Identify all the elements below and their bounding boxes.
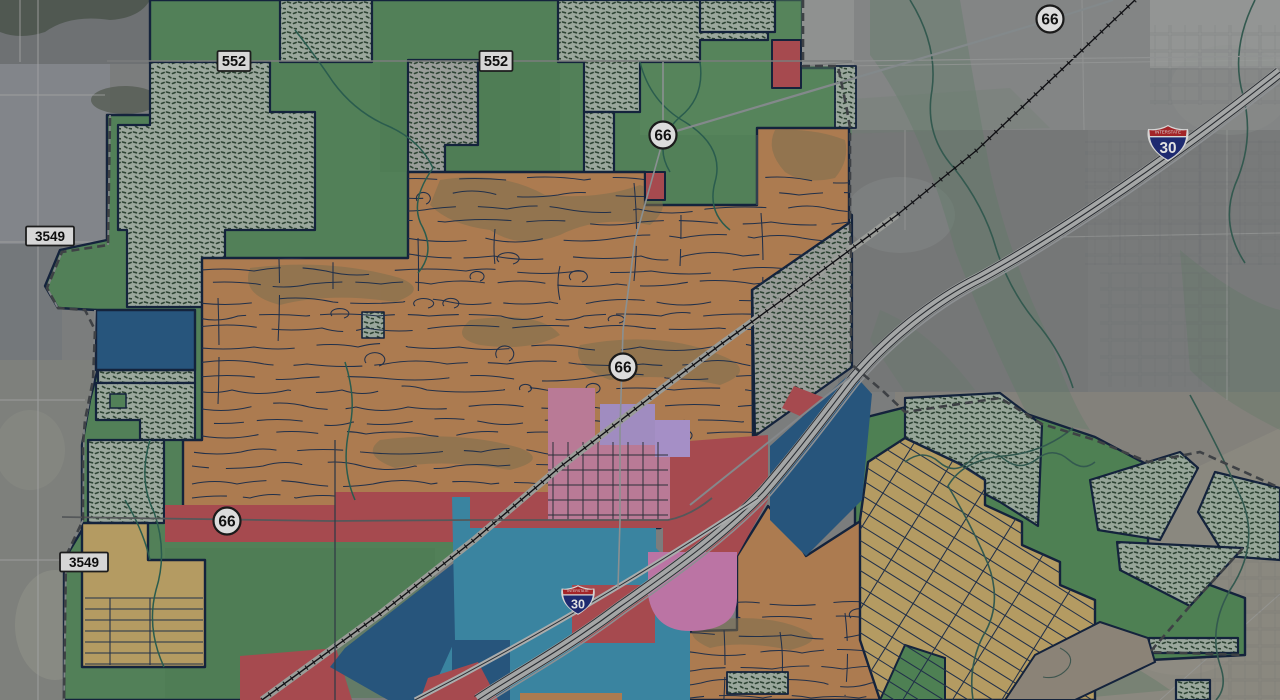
svg-text:66: 66 [614,360,632,377]
svg-text:INTERSTATE: INTERSTATE [1155,130,1181,135]
svg-text:INTERSTATE: INTERSTATE [567,589,589,593]
svg-text:66: 66 [218,514,236,531]
svg-text:552: 552 [222,54,246,70]
svg-text:66: 66 [1041,12,1059,29]
svg-text:3549: 3549 [35,229,65,244]
svg-text:30: 30 [1159,140,1176,157]
svg-text:66: 66 [654,128,672,145]
svg-text:552: 552 [484,54,508,70]
svg-text:30: 30 [571,597,585,611]
svg-text:3549: 3549 [69,555,99,570]
